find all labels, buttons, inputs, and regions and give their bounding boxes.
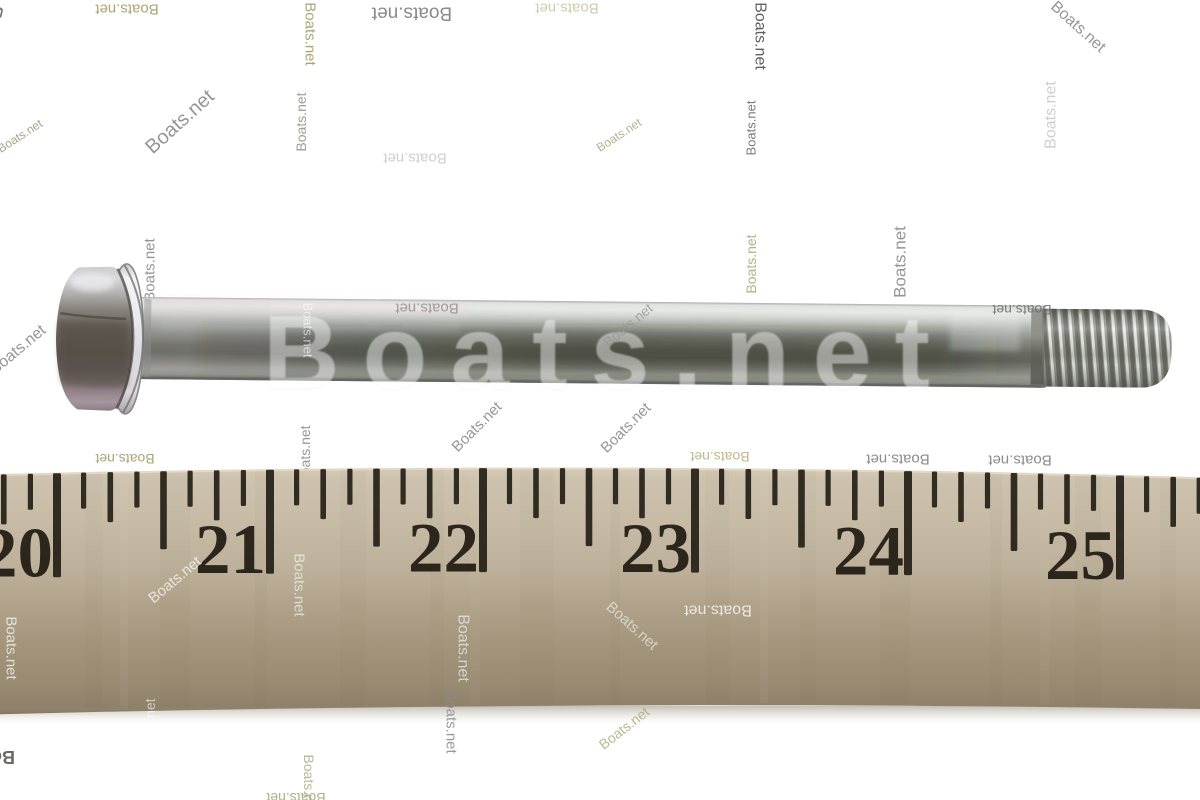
svg-text:Boats.net: Boats.net	[95, 451, 154, 467]
svg-text:Boats.net: Boats.net	[293, 92, 309, 151]
svg-text:Boats.net: Boats.net	[394, 300, 458, 317]
svg-text:21: 21	[195, 511, 266, 589]
svg-text:Boats.net: Boats.net	[690, 449, 749, 465]
svg-text:Boats.net: Boats.net	[371, 3, 452, 24]
svg-text:Boats.net: Boats.net	[302, 2, 319, 66]
svg-text:Boats.net: Boats.net	[443, 690, 460, 754]
svg-text:Boats.net: Boats.net	[94, 1, 158, 18]
svg-text:20: 20	[0, 515, 53, 593]
svg-text:24: 24	[833, 513, 904, 591]
svg-text:Boats.net: Boats.net	[891, 226, 910, 298]
svg-text:23: 23	[620, 510, 691, 588]
svg-text:Boats.net: Boats.net	[301, 303, 316, 358]
svg-text:Boats.net: Boats.net	[865, 451, 929, 468]
svg-text:Boats.net: Boats.net	[266, 790, 325, 800]
svg-text:22: 22	[408, 510, 479, 588]
svg-text:Boats.net: Boats.net	[142, 237, 159, 301]
svg-text:25: 25	[1045, 517, 1116, 595]
svg-text:Boats.net: Boats.net	[291, 553, 308, 617]
svg-text:Boats.net: Boats.net	[0, 747, 15, 767]
svg-text:Boats.net: Boats.net	[992, 302, 1051, 318]
svg-text:Boats.net: Boats.net	[382, 150, 446, 167]
svg-text:Boats.net: Boats.net	[142, 698, 158, 757]
svg-text:Boats.net: Boats.net	[684, 602, 752, 619]
svg-text:Boats.net: Boats.net	[3, 616, 20, 680]
svg-text:Boats.net: Boats.net	[987, 452, 1051, 469]
svg-text:Boats.net: Boats.net	[455, 614, 472, 682]
svg-text:Boats.net: Boats.net	[1043, 81, 1060, 149]
svg-text:Boats.net: Boats.net	[534, 0, 598, 17]
svg-text:Boats.net: Boats.net	[263, 294, 953, 412]
svg-text:Boats.net: Boats.net	[743, 234, 759, 293]
svg-text:Boats.net: Boats.net	[752, 2, 769, 70]
svg-text:Boats.net: Boats.net	[744, 100, 759, 155]
